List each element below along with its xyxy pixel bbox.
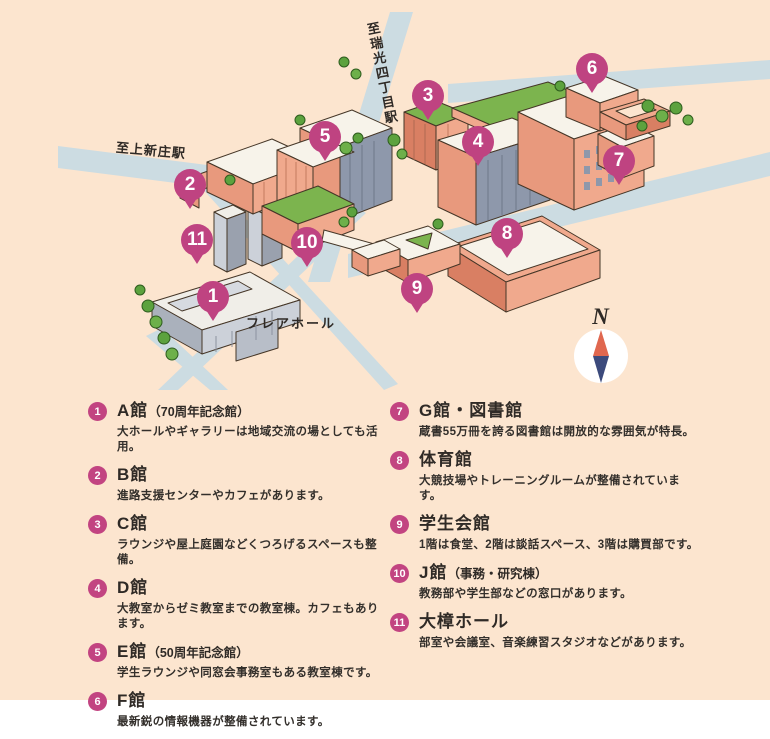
legend-item: 1 A館（70周年記念館） 大ホールやギャラリーは地域交流の場としても活用。 bbox=[88, 400, 384, 455]
building-description: 部室や会議室、音楽練習スタジオなどがあります。 bbox=[419, 636, 692, 651]
legend-number-badge: 2 bbox=[88, 466, 107, 485]
legend-number-badge: 9 bbox=[390, 515, 409, 534]
legend-number-badge: 3 bbox=[88, 515, 107, 534]
legend-number-badge: 1 bbox=[88, 402, 107, 421]
building-description: 蔵書55万冊を誇る図書館は開放的な雰囲気が特長。 bbox=[419, 425, 694, 440]
map-marker-4: 4 bbox=[462, 126, 494, 158]
map-marker-number: 7 bbox=[614, 150, 625, 172]
building-description: 進路支援センターやカフェがあります。 bbox=[117, 489, 330, 504]
building-description: 1階は食堂、2階は談話スペース、3階は購買部です。 bbox=[419, 538, 699, 553]
map-marker-number: 9 bbox=[412, 278, 423, 300]
building-title-note: （50周年記念館） bbox=[147, 646, 248, 660]
legend-item: 5 E館（50周年記念館） 学生ラウンジや同窓会事務室もある教室棟です。 bbox=[88, 641, 384, 681]
building-title: A館（70周年記念館） bbox=[117, 400, 384, 423]
campus-map-page: 至瑞光四丁目駅 至上新庄駅 フレアホール N 1 2 3 4 5 6 7 bbox=[0, 0, 770, 700]
building-title: 大樟ホール bbox=[419, 611, 692, 634]
map-marker-number: 10 bbox=[296, 232, 317, 254]
building-title: 学生会館 bbox=[419, 513, 699, 536]
legend-item: 8 体育館 大競技場やトレーニングルームが整備されています。 bbox=[390, 449, 700, 504]
map-marker-2: 2 bbox=[174, 169, 206, 201]
building-title: B館 bbox=[117, 464, 330, 487]
legend-item: 7 G館・図書館 蔵書55万冊を誇る図書館は開放的な雰囲気が特長。 bbox=[390, 400, 700, 440]
legend-item: 11 大樟ホール 部室や会議室、音楽練習スタジオなどがあります。 bbox=[390, 611, 700, 651]
building-title: F館 bbox=[117, 690, 330, 713]
building-description: 大教室からゼミ教室までの教室棟。カフェもあります。 bbox=[117, 602, 384, 632]
campus-map-illustration: 至瑞光四丁目駅 至上新庄駅 フレアホール N 1 2 3 4 5 6 7 bbox=[0, 0, 770, 390]
legend-item: 9 学生会館 1階は食堂、2階は談話スペース、3階は購買部です。 bbox=[390, 513, 700, 553]
building-title: G館・図書館 bbox=[419, 400, 694, 423]
building-description: ラウンジや屋上庭園などくつろげるスペースも整備。 bbox=[117, 538, 384, 568]
legend-number-badge: 6 bbox=[88, 692, 107, 711]
map-marker-number: 11 bbox=[187, 229, 207, 251]
building-title: J館（事務・研究棟） bbox=[419, 562, 632, 585]
map-marker-number: 1 bbox=[208, 286, 219, 308]
map-marker-number: 2 bbox=[185, 174, 196, 196]
map-marker-3: 3 bbox=[412, 80, 444, 112]
legend-item: 4 D館 大教室からゼミ教室までの教室棟。カフェもあります。 bbox=[88, 577, 384, 632]
building-title-note: （事務・研究棟） bbox=[447, 567, 547, 581]
map-marker-10: 10 bbox=[291, 227, 323, 259]
legend-number-badge: 11 bbox=[390, 613, 409, 632]
map-marker-9: 9 bbox=[401, 273, 433, 305]
legend-number-badge: 8 bbox=[390, 451, 409, 470]
building-title-note: （70周年記念館） bbox=[148, 405, 249, 419]
building-description: 教務部や学生部などの窓口があります。 bbox=[419, 587, 632, 602]
map-marker-11: 11 bbox=[181, 224, 213, 256]
legend-item: 6 F館 最新鋭の情報機器が整備されています。 bbox=[88, 690, 384, 730]
legend-number-badge: 10 bbox=[390, 564, 409, 583]
map-marker-number: 6 bbox=[587, 58, 598, 80]
map-marker-number: 4 bbox=[473, 131, 484, 153]
map-marker-number: 8 bbox=[502, 223, 513, 245]
map-marker-8: 8 bbox=[491, 218, 523, 250]
building-title: C館 bbox=[117, 513, 384, 536]
building-description: 最新鋭の情報機器が整備されています。 bbox=[117, 715, 330, 730]
map-marker-6: 6 bbox=[576, 53, 608, 85]
map-markers: 1 2 3 4 5 6 7 8 9 10 bbox=[0, 0, 770, 390]
legend-item: 3 C館 ラウンジや屋上庭園などくつろげるスペースも整備。 bbox=[88, 513, 384, 568]
legend-number-badge: 4 bbox=[88, 579, 107, 598]
map-marker-1: 1 bbox=[197, 281, 229, 313]
building-title: E館（50周年記念館） bbox=[117, 641, 378, 664]
building-description: 学生ラウンジや同窓会事務室もある教室棟です。 bbox=[117, 666, 378, 681]
building-title: 体育館 bbox=[419, 449, 700, 472]
legend-number-badge: 7 bbox=[390, 402, 409, 421]
building-description: 大競技場やトレーニングルームが整備されています。 bbox=[419, 474, 700, 504]
legend-column-right: 7 G館・図書館 蔵書55万冊を誇る図書館は開放的な雰囲気が特長。 8 体育館 … bbox=[390, 400, 700, 660]
map-marker-5: 5 bbox=[309, 121, 341, 153]
map-marker-number: 3 bbox=[423, 85, 434, 107]
building-description: 大ホールやギャラリーは地域交流の場としても活用。 bbox=[117, 425, 384, 455]
map-marker-7: 7 bbox=[603, 145, 635, 177]
legend-number-badge: 5 bbox=[88, 643, 107, 662]
legend-column-left: 1 A館（70周年記念館） 大ホールやギャラリーは地域交流の場としても活用。 2… bbox=[88, 400, 384, 739]
legend-item: 2 B館 進路支援センターやカフェがあります。 bbox=[88, 464, 384, 504]
legend-item: 10 J館（事務・研究棟） 教務部や学生部などの窓口があります。 bbox=[390, 562, 700, 602]
building-title: D館 bbox=[117, 577, 384, 600]
map-marker-number: 5 bbox=[320, 126, 331, 148]
